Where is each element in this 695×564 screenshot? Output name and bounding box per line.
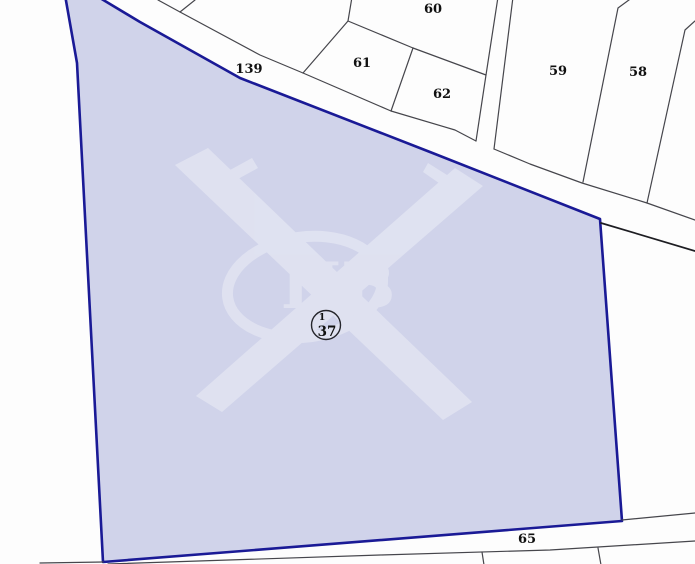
road-65-upper-edge-right-line bbox=[622, 513, 695, 520]
parcel-60-62-boundary-line bbox=[413, 48, 486, 75]
cadastral-map-viewport[interactable]: НВ601396162595865137 bbox=[0, 0, 695, 564]
parcel-label-59: 59 bbox=[549, 64, 567, 79]
cadastral-map[interactable]: НВ601396162595865137 bbox=[0, 0, 695, 564]
path-strip-right-edge-line bbox=[494, 0, 513, 149]
parcel-label-139: 139 bbox=[235, 62, 262, 77]
parcel-split-below-65-line-1 bbox=[482, 552, 484, 564]
road-65-lower-edge-left-line bbox=[40, 562, 103, 563]
parcel-label-65: 65 bbox=[518, 532, 536, 547]
parcel-58-left-edge-line bbox=[583, 0, 633, 182]
parcel-label-61: 61 bbox=[353, 56, 371, 71]
path-strip-left-edge-line bbox=[476, 0, 498, 141]
selected-parcel-number-superscript: 1 bbox=[319, 312, 326, 323]
parcel-61-left-edge-line bbox=[303, 0, 352, 73]
parcel-61-62-boundary-line bbox=[391, 48, 413, 111]
parcel-label-62: 62 bbox=[433, 87, 451, 102]
parcel-60-61-boundary-line bbox=[348, 21, 413, 48]
parcel-split-below-65-line-2 bbox=[598, 548, 601, 564]
parcel-label-58: 58 bbox=[629, 65, 647, 80]
selected-parcel-number-main: 37 bbox=[318, 324, 337, 340]
parcel-58-right-edge-line bbox=[647, 21, 695, 203]
road-lower-edge-right-line bbox=[601, 223, 695, 251]
watermark-letters: НВ bbox=[281, 249, 396, 324]
top-left-parcel-split-line bbox=[180, 0, 195, 12]
parcel-label-60: 60 bbox=[424, 2, 442, 17]
